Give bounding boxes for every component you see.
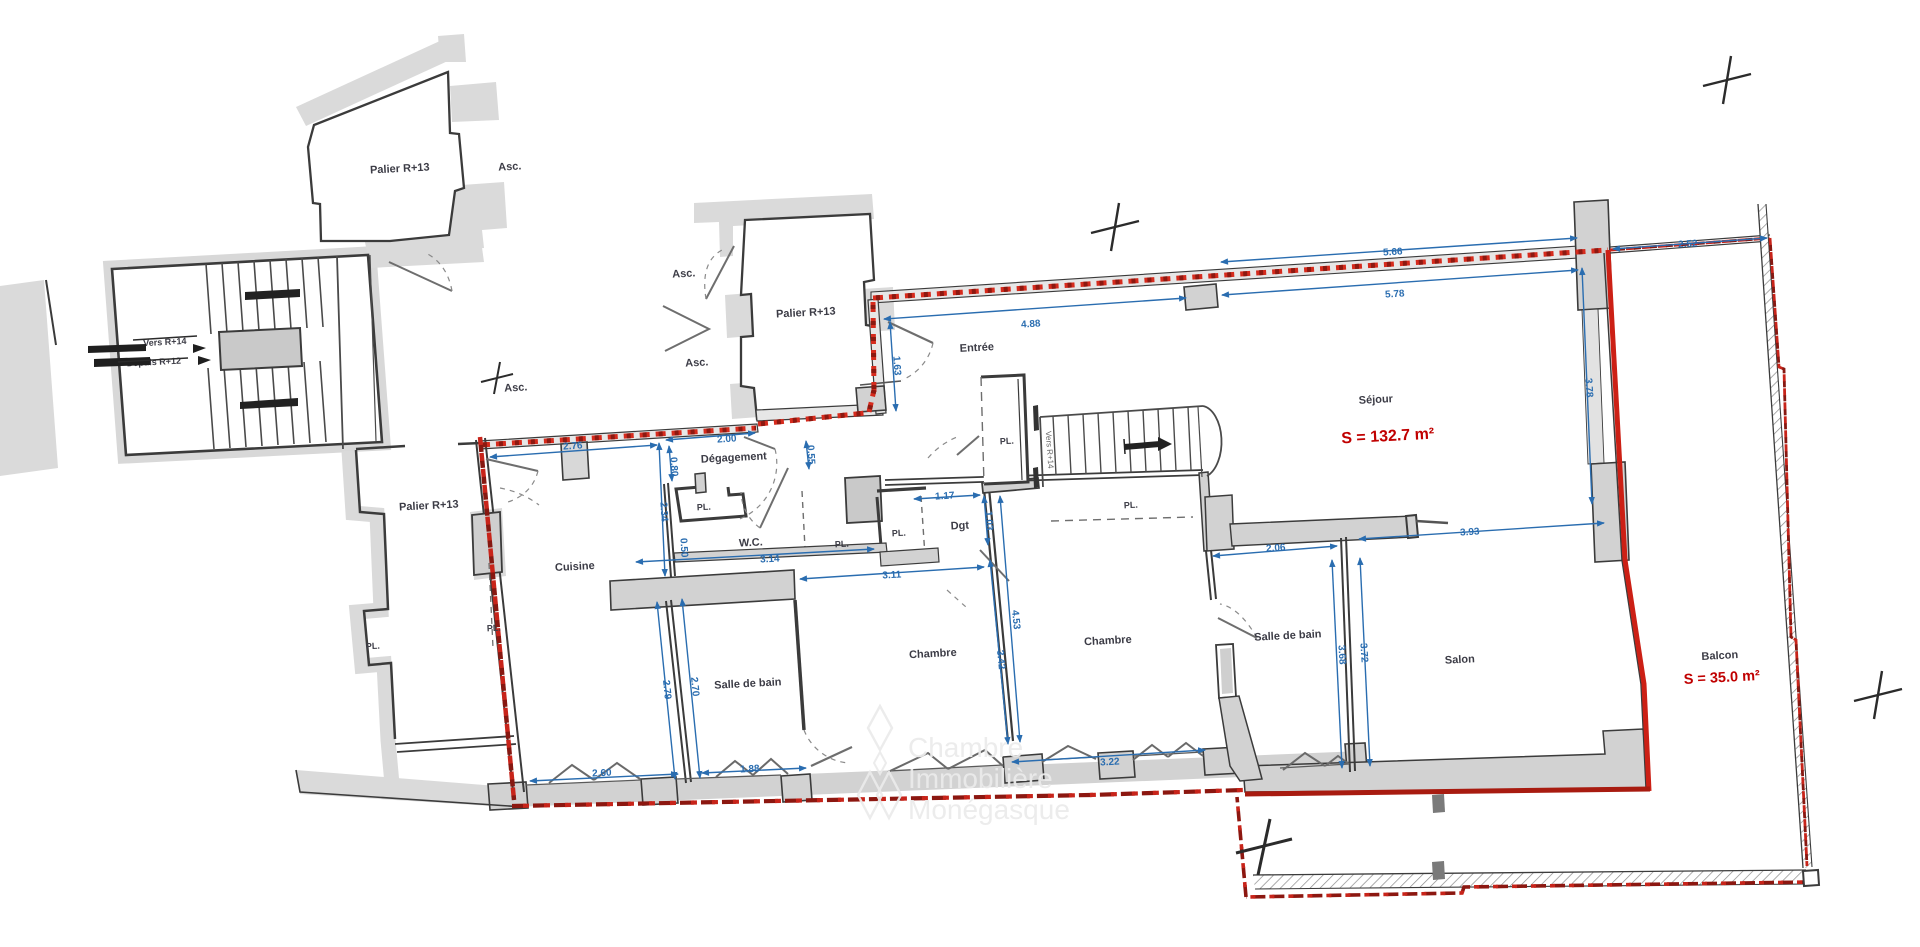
svg-text:Immobilière: Immobilière: [908, 763, 1053, 794]
svg-text:Séjour: Séjour: [1358, 393, 1394, 407]
svg-text:3.78: 3.78: [1582, 378, 1594, 399]
svg-text:2.79: 2.79: [660, 679, 673, 700]
svg-text:0.50: 0.50: [677, 538, 689, 559]
svg-text:3.93: 3.93: [1460, 526, 1481, 538]
svg-text:1.88: 1.88: [740, 763, 760, 775]
svg-text:PL.: PL.: [487, 623, 502, 634]
svg-text:1.03: 1.03: [982, 511, 994, 532]
svg-text:0.80: 0.80: [667, 457, 679, 478]
svg-text:1.63: 1.63: [890, 356, 902, 377]
svg-text:2.06: 2.06: [1266, 542, 1287, 554]
svg-text:2.00: 2.00: [717, 433, 738, 445]
svg-text:2.76: 2.76: [563, 440, 584, 452]
svg-text:PL.: PL.: [835, 539, 850, 550]
svg-text:0.55: 0.55: [804, 445, 816, 466]
svg-text:5.78: 5.78: [1385, 288, 1406, 300]
svg-text:Asc.: Asc.: [685, 356, 709, 369]
svg-text:PL.: PL.: [1124, 500, 1139, 511]
svg-text:3.22: 3.22: [1100, 756, 1120, 768]
svg-text:1.17: 1.17: [935, 490, 956, 502]
svg-text:Chambre: Chambre: [909, 647, 957, 661]
svg-text:PL.: PL.: [697, 502, 712, 513]
svg-text:3.11: 3.11: [882, 569, 902, 581]
svg-text:3.72: 3.72: [1357, 643, 1369, 664]
svg-text:2.70: 2.70: [688, 676, 701, 697]
svg-text:Cuisine: Cuisine: [555, 560, 595, 574]
svg-text:Balcon: Balcon: [1701, 649, 1739, 663]
svg-text:5.66: 5.66: [1383, 246, 1404, 258]
svg-text:Chambre: Chambre: [1084, 634, 1132, 648]
svg-text:Dgt: Dgt: [950, 520, 969, 533]
svg-text:2.60: 2.60: [592, 767, 612, 779]
svg-text:W.C.: W.C.: [739, 536, 763, 549]
svg-text:Entrée: Entrée: [959, 341, 994, 355]
svg-text:Asc.: Asc.: [504, 381, 528, 394]
svg-text:Chambre: Chambre: [908, 732, 1023, 763]
svg-text:Asc.: Asc.: [498, 160, 522, 173]
svg-text:PL.: PL.: [366, 641, 381, 652]
svg-text:3.68: 3.68: [1335, 645, 1347, 666]
svg-text:Monégasque: Monégasque: [908, 794, 1070, 825]
svg-text:2.34: 2.34: [657, 502, 669, 523]
svg-text:4.53: 4.53: [1009, 609, 1022, 630]
svg-text:2.52: 2.52: [1678, 238, 1699, 250]
svg-text:4.88: 4.88: [1021, 318, 1042, 330]
svg-text:PL.: PL.: [892, 528, 907, 539]
svg-text:3.42: 3.42: [994, 649, 1007, 670]
svg-text:PL.: PL.: [1000, 436, 1015, 447]
svg-text:3.14: 3.14: [760, 553, 780, 565]
svg-text:Asc.: Asc.: [672, 267, 696, 280]
svg-text:Salon: Salon: [1445, 653, 1476, 667]
